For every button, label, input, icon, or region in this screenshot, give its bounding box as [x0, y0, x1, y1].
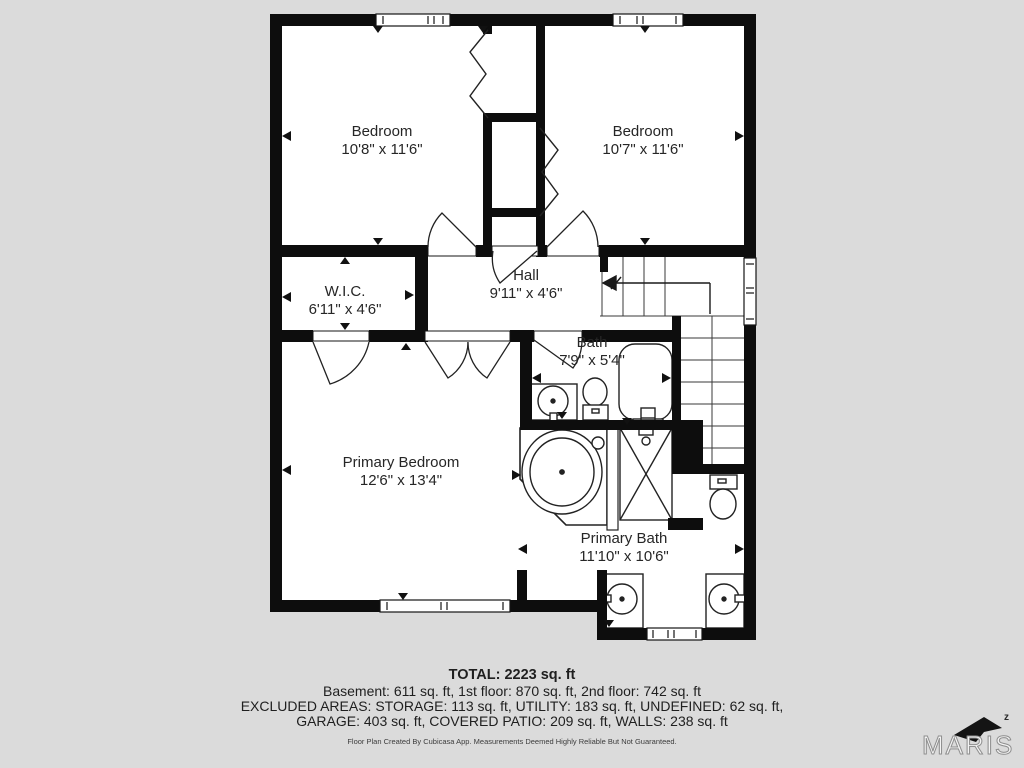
- room-label-hall: Hall 9'11" x 4'6": [490, 267, 563, 303]
- room-name: Hall: [490, 267, 563, 285]
- window: [744, 258, 756, 325]
- room-label-wic: W.I.C. 6'11" x 4'6": [309, 283, 382, 319]
- room-dims: 12'6" x 13'4": [343, 472, 460, 490]
- room-name: Bedroom: [341, 123, 422, 141]
- floor-plan-page: Bedroom 10'8" x 11'6" Bedroom 10'7" x 11…: [0, 0, 1024, 768]
- window: [613, 14, 683, 26]
- window: [647, 628, 702, 640]
- room-dims: 7'9" x 5'4": [559, 352, 625, 370]
- room-label-primary-bath: Primary Bath 11'10" x 10'6": [579, 530, 669, 566]
- disclaimer-text: Floor Plan Created By Cubicasa App. Meas…: [0, 737, 1024, 746]
- window: [376, 14, 450, 26]
- room-name: Primary Bath: [579, 530, 669, 548]
- sink-vanity-icon: [706, 574, 745, 628]
- area-summary: TOTAL: 2223 sq. ft Basement: 611 sq. ft,…: [0, 668, 1024, 746]
- room-dims: 10'7" x 11'6": [602, 141, 683, 159]
- sink-vanity-icon: [601, 574, 643, 628]
- room-dims: 11'10" x 10'6": [579, 548, 669, 566]
- maris-logo: z MARIS: [916, 700, 1024, 768]
- room-label-primary-bedroom: Primary Bedroom 12'6" x 13'4": [343, 454, 460, 490]
- shower-icon: [607, 428, 672, 530]
- excluded-areas-text-1: EXCLUDED AREAS: STORAGE: 113 sq. ft, UTI…: [0, 699, 1024, 714]
- excluded-areas-text-2: GARAGE: 403 sq. ft, COVERED PATIO: 209 s…: [0, 714, 1024, 729]
- room-label-bedroom-right: Bedroom 10'7" x 11'6": [602, 123, 683, 159]
- room-label-bath: Bath 7'9" x 5'4": [559, 334, 625, 370]
- room-name: W.I.C.: [309, 283, 382, 301]
- room-dims: 9'11" x 4'6": [490, 285, 563, 303]
- room-dims: 10'8" x 11'6": [341, 141, 422, 159]
- floor-areas-text: Basement: 611 sq. ft, 1st floor: 870 sq.…: [0, 684, 1024, 699]
- logo-z: z: [1004, 712, 1009, 723]
- room-name: Bath: [559, 334, 625, 352]
- maris-brand-text: MARIS: [922, 730, 1014, 761]
- room-name: Bedroom: [602, 123, 683, 141]
- room-label-bedroom-left: Bedroom 10'8" x 11'6": [341, 123, 422, 159]
- toilet-icon: [710, 475, 737, 519]
- floor-plan-drawing: [0, 0, 1024, 768]
- window: [380, 600, 510, 612]
- room-dims: 6'11" x 4'6": [309, 301, 382, 319]
- toilet-icon: [583, 378, 608, 420]
- room-name: Primary Bedroom: [343, 454, 460, 472]
- sink-vanity-icon: [531, 384, 577, 421]
- total-area-text: TOTAL: 2223 sq. ft: [0, 668, 1024, 683]
